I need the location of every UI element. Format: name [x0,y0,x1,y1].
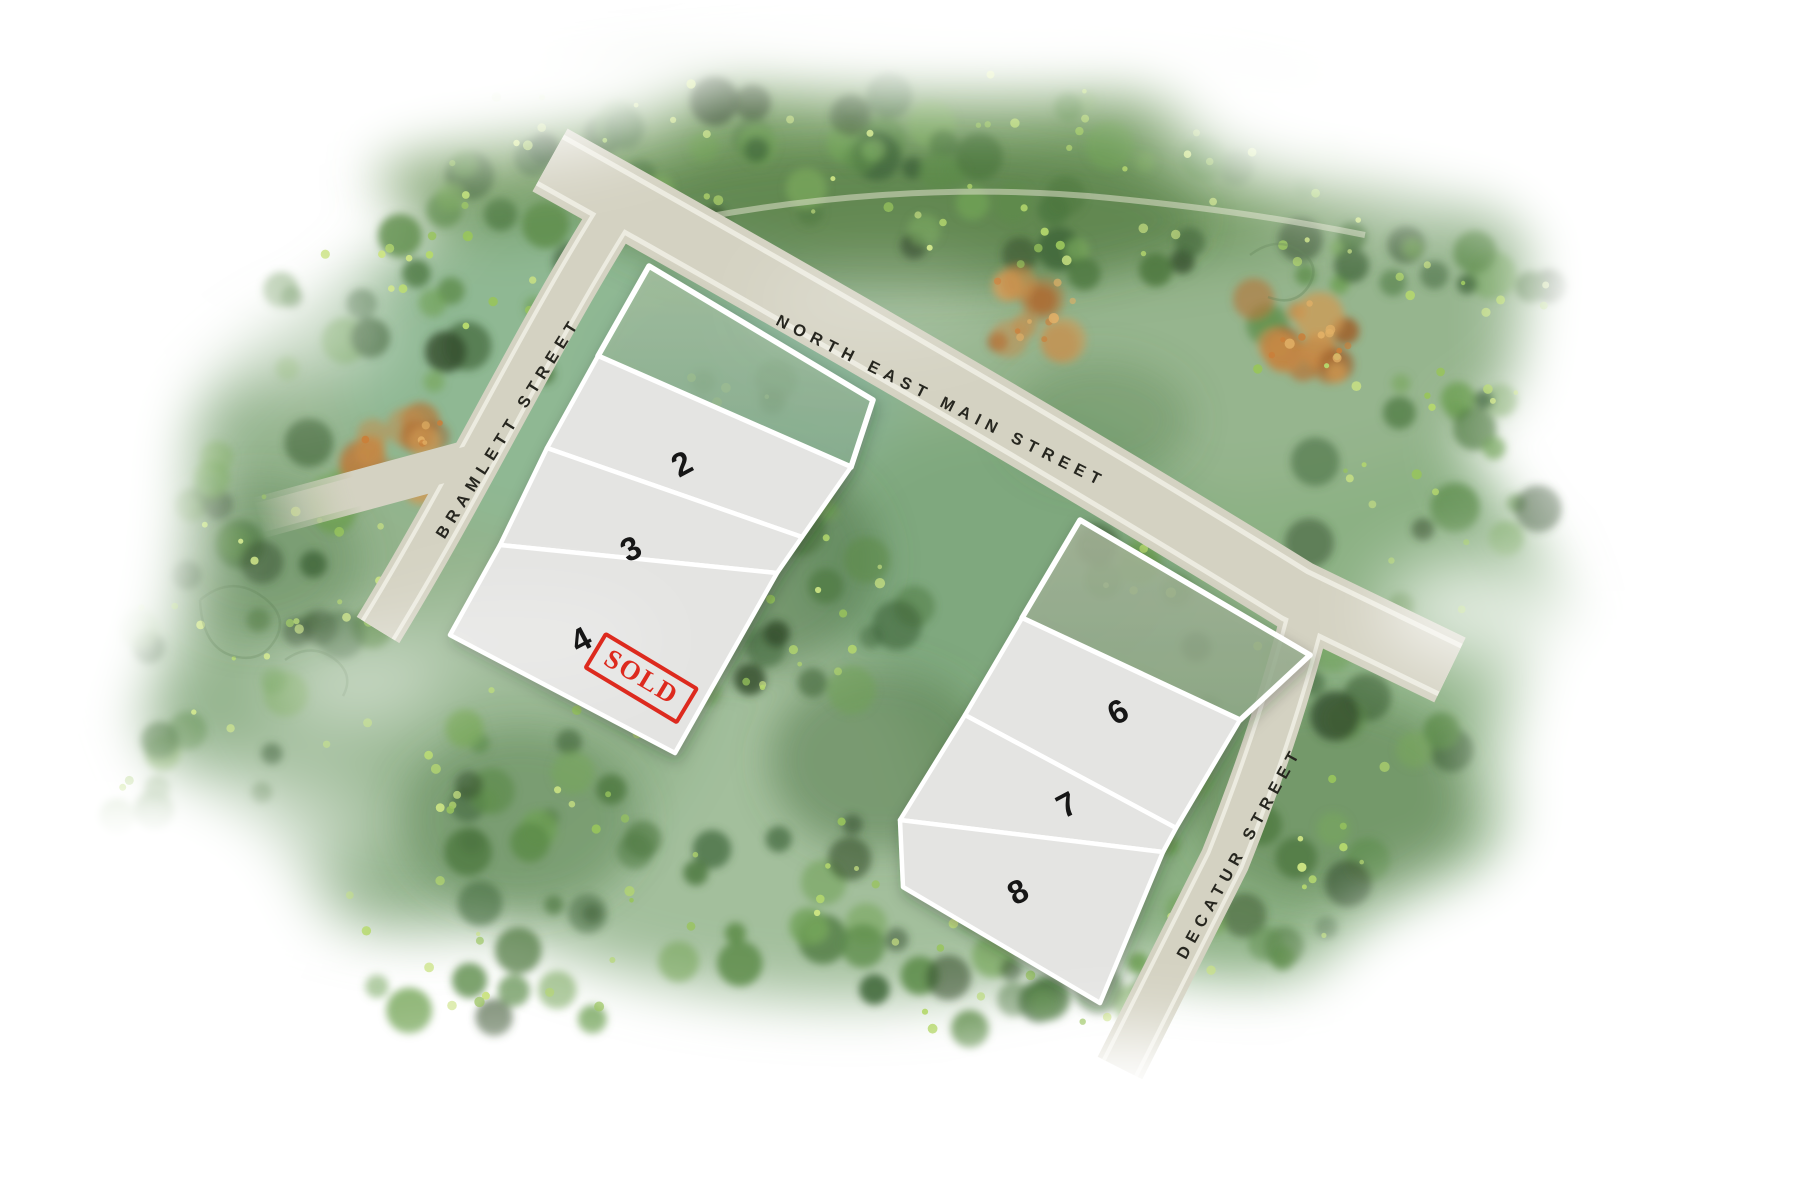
site-plan-canvas [0,0,1800,1200]
site-plan-map: NORTH EAST MAIN STREET BRAMLETT STREET D… [0,0,1800,1200]
